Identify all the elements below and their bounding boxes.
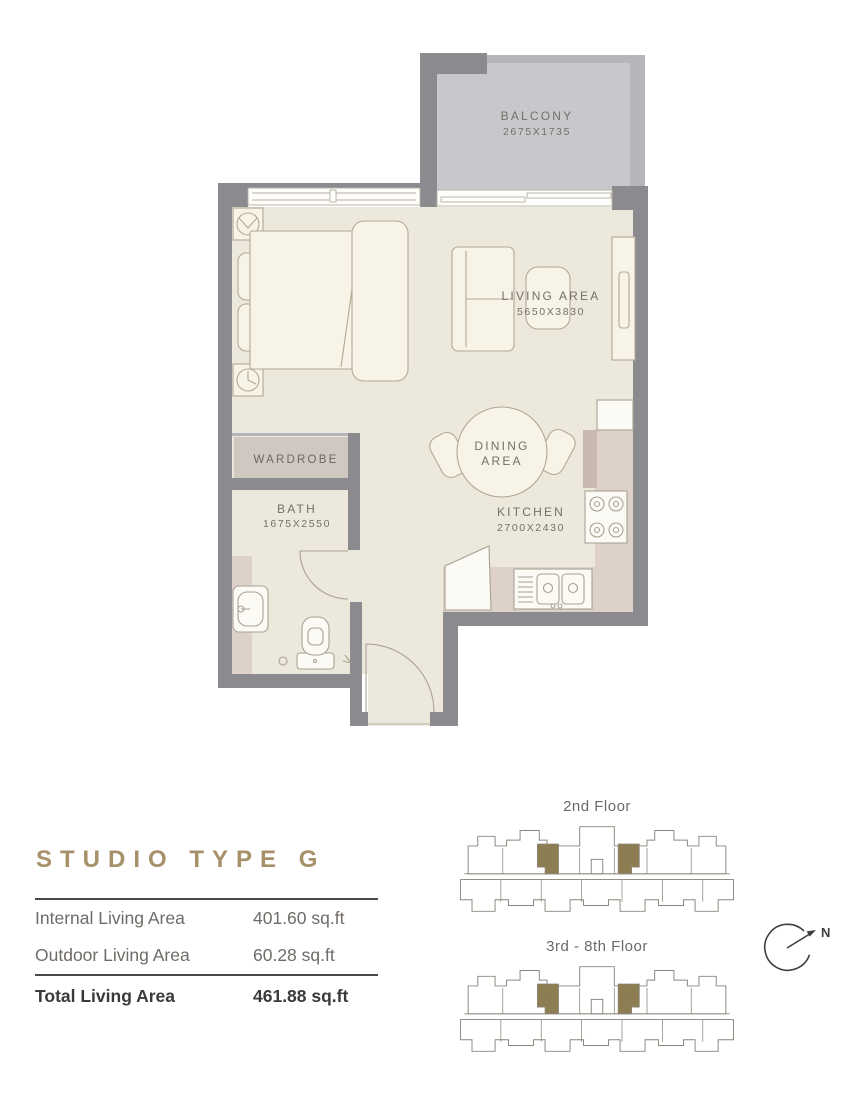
table-row-internal: Internal Living Area 401.60 sq.ft (35, 900, 378, 937)
key-plan-drawing (448, 819, 746, 919)
tv-cabinet (612, 237, 635, 360)
compass-north-label: N (821, 925, 830, 940)
table-row-total: Total Living Area 461.88 sq.ft (35, 976, 378, 1016)
dining-label-2: AREA (481, 454, 522, 468)
bed (233, 208, 408, 396)
key-plan-label: 2nd Floor (448, 798, 746, 815)
key-plan-drawing (448, 959, 746, 1059)
bath-sink-icon (233, 586, 268, 632)
wardrobe-label: WARDROBE (254, 454, 339, 466)
bedroom-window (248, 188, 420, 205)
floor-plan: BALCONY 2675X1735 LIVING AREA 5650X3830 … (0, 0, 866, 760)
row-label: Total Living Area (35, 986, 253, 1007)
floor-plan-page: BALCONY 2675X1735 LIVING AREA 5650X3830 … (0, 0, 866, 1100)
key-plan-3rd-8th-floor: 3rd - 8th Floor (448, 938, 746, 1059)
north-compass: N (750, 898, 845, 988)
hob-icon (585, 491, 627, 543)
balcony-label: BALCONY (501, 109, 574, 123)
bath-dims: 1675X2550 (263, 518, 331, 530)
row-value: 60.28 sq.ft (253, 945, 378, 966)
page-title: STUDIO TYPE G (36, 846, 325, 874)
key-plan-2nd-floor: 2nd Floor (448, 798, 746, 919)
key-plan-label: 3rd - 8th Floor (448, 938, 746, 955)
kitchen-sink-icon (514, 569, 592, 609)
living-dims: 5650X3830 (517, 306, 585, 318)
row-label: Outdoor Living Area (35, 945, 253, 966)
area-table: Internal Living Area 401.60 sq.ft Outdoo… (35, 898, 378, 1016)
kitchen-label: KITCHEN (497, 505, 565, 519)
balcony-dims: 2675X1735 (503, 126, 571, 138)
living-label: LIVING AREA (502, 289, 601, 303)
table-row-outdoor: Outdoor Living Area 60.28 sq.ft (35, 937, 378, 974)
row-value: 401.60 sq.ft (253, 908, 378, 929)
row-label: Internal Living Area (35, 908, 253, 929)
kitchen-dims: 2700X2430 (497, 522, 565, 534)
dining-label-1: DINING (474, 439, 529, 453)
balcony-sliding-door (437, 190, 612, 206)
bath-label: BATH (277, 502, 317, 516)
row-value: 461.88 sq.ft (253, 986, 378, 1007)
